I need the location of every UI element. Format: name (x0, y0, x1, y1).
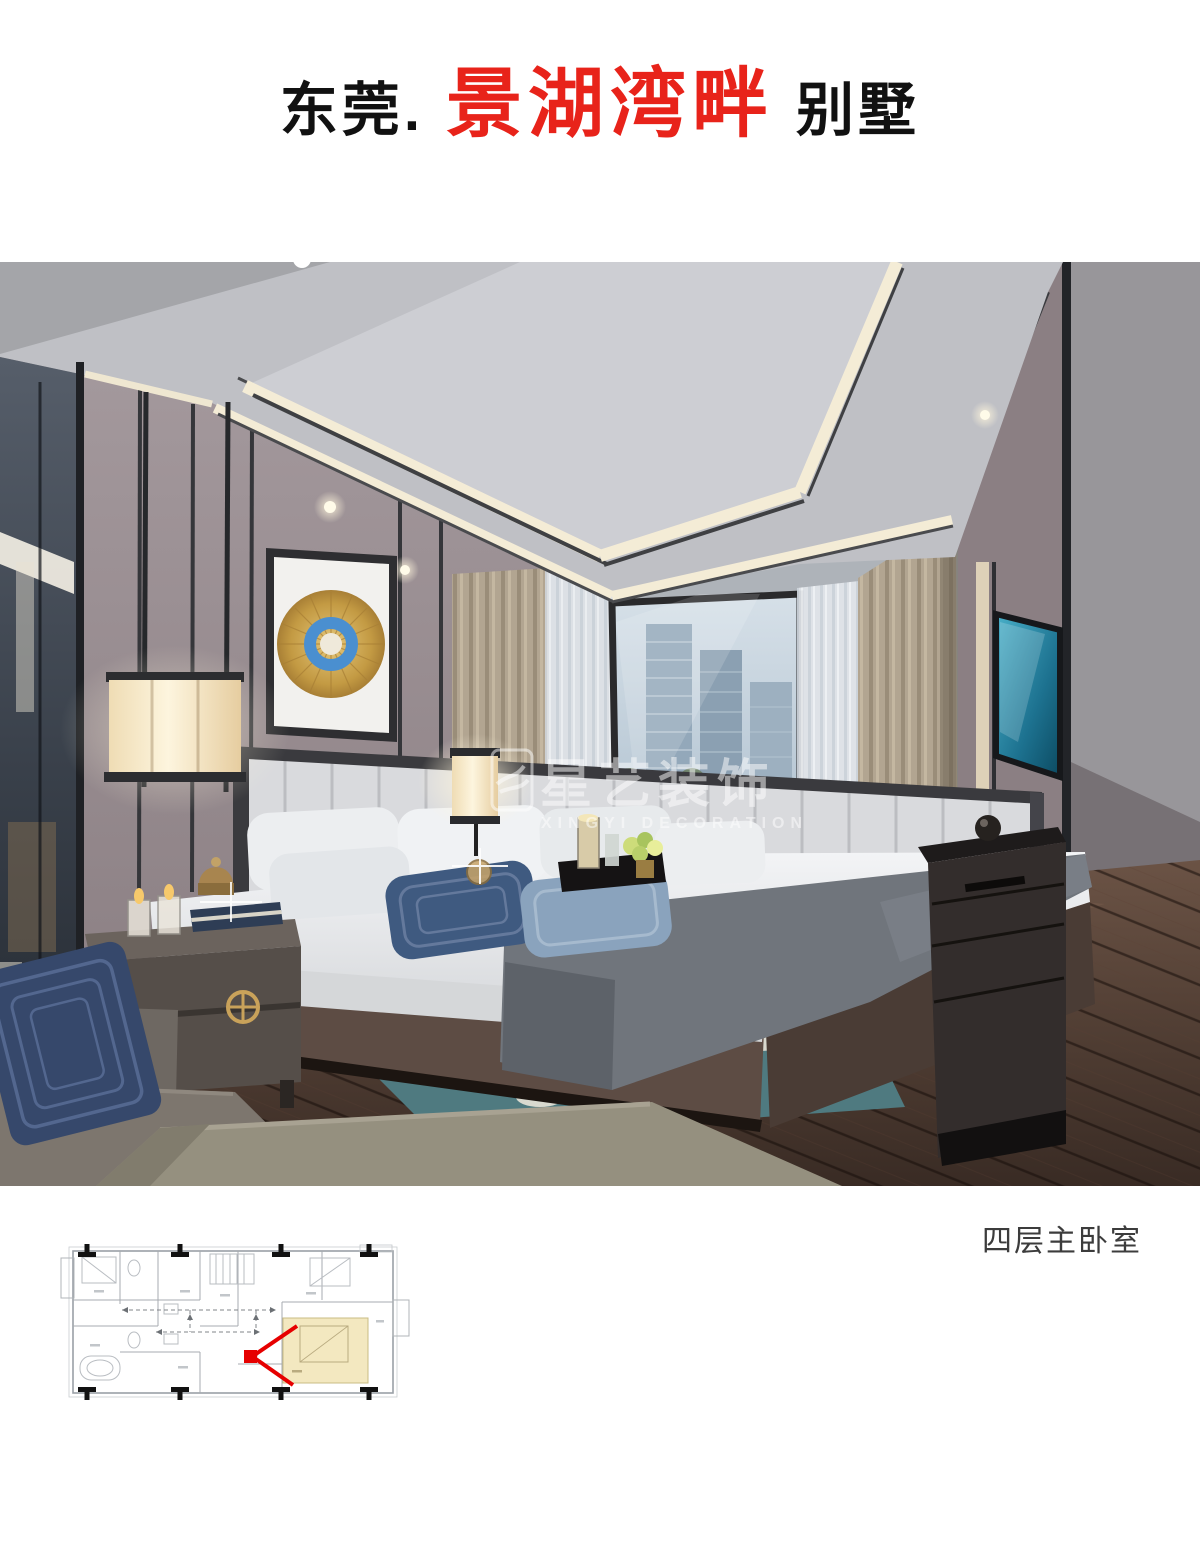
title-prefix: 东莞. (280, 63, 424, 147)
bedroom-photo-svg: 星艺装饰 XINGYI DECORATION (0, 262, 1200, 1186)
tv (996, 614, 1060, 777)
photo-caption: 四层主卧室 (982, 1216, 1200, 1260)
dresser (918, 815, 1066, 1166)
decor-sphere (975, 815, 1001, 841)
page-title: 东莞. 景湖湾畔 别墅 (0, 42, 1200, 152)
page: 东莞. 景湖湾畔 别墅 (0, 0, 1200, 1557)
mirror-lamp-reflection (8, 822, 56, 952)
bedroom-rendering: 星艺装饰 XINGYI DECORATION (0, 262, 1200, 1186)
watermark-cn: 星艺装饰 (540, 756, 776, 814)
floor-plan (60, 1243, 420, 1415)
title-project-name: 景湖湾畔 (446, 42, 774, 152)
floor-plan-svg (60, 1243, 420, 1415)
watermark-en: XINGYI DECORATION (541, 815, 808, 832)
title-suffix: 别墅 (796, 63, 920, 147)
